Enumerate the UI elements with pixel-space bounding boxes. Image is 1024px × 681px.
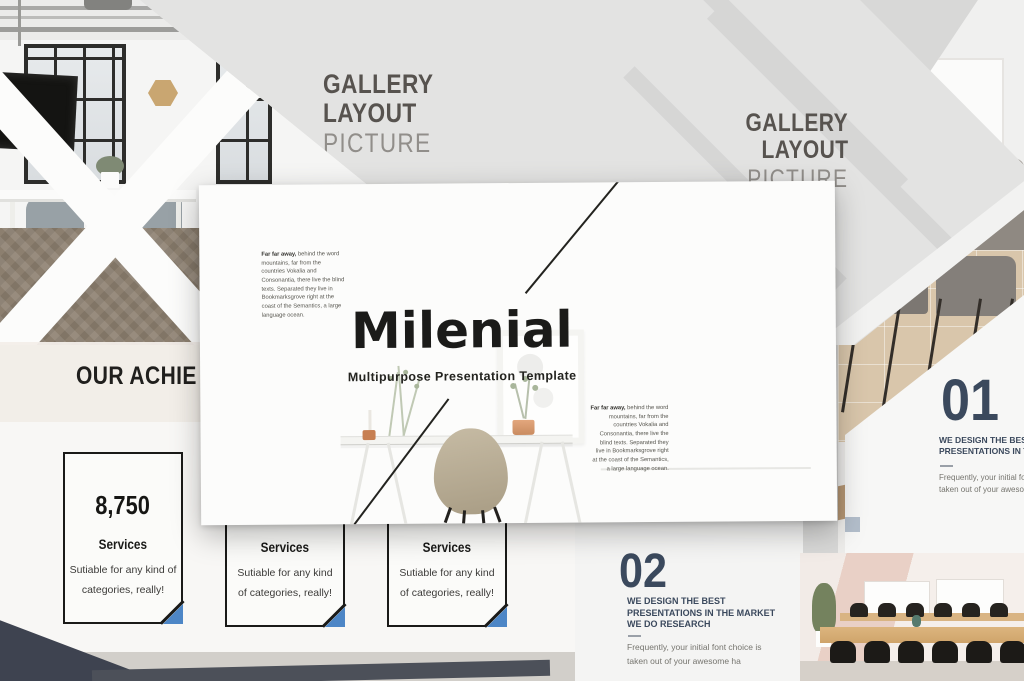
wood-table	[820, 627, 1024, 643]
paragraph-lead: Far far away,	[590, 405, 625, 411]
chair-leg	[462, 510, 466, 523]
slide-heading: WE DESIGN THE BEST PRESENTATIONS IN THE	[939, 435, 1024, 457]
slide-heading-line: PRESENTATIONS IN THE MARKET	[627, 608, 775, 620]
card-fold-accent	[163, 604, 183, 624]
slide-heading-line: PRESENTATIONS IN THE	[939, 446, 1024, 457]
paragraph-body: behind the word mountains, far from the …	[592, 405, 668, 472]
chair-silhouette	[864, 641, 890, 663]
hexagon-wall-decor	[148, 80, 178, 106]
card-text: Sutiable for any kind	[225, 567, 345, 579]
accent-square	[845, 517, 860, 532]
card-text: Sutiable for any kind	[387, 567, 507, 579]
office-photo-bottom-right	[800, 553, 1024, 681]
chair-silhouette	[850, 603, 868, 617]
card-text: Sutiable for any kind of	[63, 564, 183, 576]
leaf	[510, 383, 516, 389]
gallery-title-line: GALLERY	[323, 70, 433, 99]
card-heading: Services	[261, 539, 309, 555]
card-heading: Services	[423, 539, 471, 555]
chair-silhouette	[830, 641, 856, 663]
chair-silhouette	[932, 641, 958, 663]
frame-art	[533, 388, 553, 408]
gallery-title-line: LAYOUT	[761, 137, 848, 164]
chair-silhouette	[962, 603, 980, 617]
chair-silhouette	[898, 641, 924, 663]
wall-conduit	[18, 0, 21, 46]
plant-pot	[512, 420, 534, 435]
chair-silhouette	[878, 603, 896, 617]
chair-silhouette	[990, 603, 1008, 617]
cover-slide: Far far away, behind the word mountains,…	[199, 181, 837, 525]
chair-leg	[444, 507, 452, 523]
slide-number: 01	[941, 367, 1006, 434]
chair-silhouette	[966, 641, 992, 663]
heading-divider	[628, 635, 641, 637]
chair-leg	[493, 507, 501, 523]
paragraph-lead: Far far away,	[261, 252, 296, 258]
slide-number-text: 01	[941, 367, 999, 434]
gallery-title-line: GALLERY	[745, 110, 848, 137]
card-fold-accent	[487, 607, 507, 627]
floor	[800, 661, 1024, 681]
candle	[368, 410, 371, 430]
card-number: 8,750	[96, 490, 151, 521]
small-plant	[912, 615, 921, 627]
slide-body-line: taken out of your awesome ha	[627, 656, 741, 666]
slide-number: 02	[619, 544, 672, 599]
leaf	[532, 385, 538, 391]
leaf	[414, 384, 419, 389]
slide-body-line: Frequently, your initial font choice	[939, 473, 1024, 482]
candle-holder	[363, 430, 376, 440]
achievements-title: OUR ACHIE	[76, 362, 220, 391]
stat-card: 8,750 Services Sutiable for any kind of …	[63, 452, 183, 624]
template-subtitle: Multipurpose Presentation Template	[200, 368, 724, 386]
template-preview-collage: GALLERY LAYOUT PICTURE GALLERY LAYOUT PI…	[0, 0, 1024, 681]
card-text: categories, really!	[63, 584, 183, 596]
slide-body-line: taken out of your awesome ha	[939, 485, 1024, 494]
card-heading: Services	[99, 536, 147, 552]
plant	[812, 583, 836, 633]
card-fold-accent	[325, 607, 345, 627]
gallery-title-line: LAYOUT	[323, 99, 417, 128]
card-text: of categories, really!	[225, 587, 345, 599]
desk-stretcher	[535, 483, 577, 486]
card-text: of categories, really!	[387, 587, 507, 599]
template-title: Milenial	[200, 300, 724, 362]
heading-divider	[940, 465, 953, 467]
gallery-title-left: GALLERY LAYOUT PICTURE	[323, 70, 455, 159]
ceiling-vent	[84, 0, 132, 10]
slide-heading: WE DESIGN THE BEST PRESENTATIONS IN THE …	[627, 596, 775, 631]
chair-silhouette	[1000, 641, 1024, 663]
slide-heading-line: WE DO RESEARCH	[627, 619, 775, 631]
slide-number-text: 02	[619, 544, 667, 599]
slide-body-line: Frequently, your initial font choice is	[627, 642, 762, 652]
diagonal-accent-line	[525, 181, 622, 294]
slide-heading-line: WE DESIGN THE BEST	[939, 435, 1024, 446]
chair-silhouette	[934, 603, 952, 617]
slide-heading-line: WE DESIGN THE BEST	[627, 596, 775, 608]
gallery-title-line: PICTURE	[323, 128, 431, 159]
cover-paragraph-right: Far far away, behind the word mountains,…	[590, 404, 668, 474]
achievements-title-text: OUR ACHIE	[76, 362, 197, 391]
